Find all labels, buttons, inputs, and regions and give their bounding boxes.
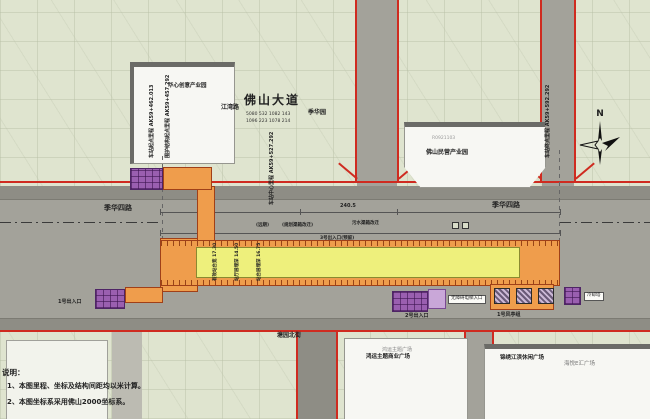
entrance-2-structure: [392, 291, 428, 312]
building-bottom-left: [6, 340, 108, 419]
notes-line-2: 2、本图坐标系采用佛山2000坐标系。: [7, 399, 129, 406]
notes-line-1: 1、本图里程、坐标及结构间距均以米计算。: [7, 383, 145, 390]
cooling-tower-label: 冷却塔: [584, 292, 604, 301]
entrance-1-structure: [95, 289, 125, 309]
entrance-1-label: 1号出入口: [58, 300, 81, 305]
dimension-line-second: [160, 233, 560, 234]
road-label-foshan-avenue: 佛山大道: [244, 94, 300, 106]
road-label-tangyuan-north: 塘园北街: [277, 333, 301, 339]
station-label-3: 站台层埋深 16.75: [258, 243, 263, 281]
notes-heading: 说明：: [2, 369, 25, 377]
building-top-center-sublabel: R0921103: [432, 136, 455, 141]
barrier-free-lift: [428, 289, 446, 309]
road-label-jihua-right: 季华四路: [492, 202, 520, 209]
boundary-red-v1w: [355, 0, 357, 182]
mileage-end: 车站终点里程 AK59+592.292: [546, 85, 551, 158]
road-sidewalk-north: [0, 186, 650, 199]
dim-tick: [160, 209, 161, 215]
vent-shaft-3: [538, 288, 554, 304]
annotation-channel: (规划渠箱改迁): [282, 222, 313, 228]
legend-square-icon: [452, 222, 459, 229]
entrance-2-label: 2号出入口: [405, 314, 428, 319]
dim-tick: [160, 230, 161, 236]
vent-shaft-2: [516, 288, 532, 304]
station-hatch-top: [161, 241, 559, 246]
vent-shaft-1: [494, 288, 510, 304]
mileage-start-2: 围护结构起点里程 AK59+457.292: [166, 75, 171, 158]
road-label-jiangwan: 江湾路: [221, 105, 239, 111]
dim-tick: [397, 209, 398, 215]
road-centerline-west: [0, 222, 160, 223]
guide-line-east: [559, 150, 560, 242]
dimension-line-top: [160, 212, 560, 213]
dim-tick: [560, 230, 561, 236]
curb-line-north: [0, 199, 650, 200]
barrier-free-label: 无障碍电梯入口: [448, 295, 486, 304]
vent-group-1-label: 1号风亭组: [497, 313, 520, 318]
boundary-red-v1e: [397, 0, 399, 182]
road-centerline-east: [560, 222, 650, 223]
stake-numbers-row1: 5080 532 1082 143: [246, 112, 290, 117]
boundary-red-s1e: [336, 332, 338, 419]
north-arrow: N: [578, 110, 622, 174]
building-top-center-label: 佛山民营产业园: [426, 150, 468, 156]
station-platform: [196, 247, 520, 278]
building-top-left-label: 华心创意产业园: [168, 84, 207, 90]
cooling-tower: [564, 287, 581, 305]
station-north-passage: [197, 186, 215, 242]
dim-tick: [300, 209, 301, 215]
boundary-red-bottom: [0, 330, 650, 332]
boundary-red-s1w: [296, 332, 298, 419]
north-label: N: [578, 110, 622, 119]
legend-square-icon: [462, 222, 469, 229]
dim-tick: [560, 209, 561, 215]
boundary-red-v2e: [574, 0, 576, 182]
entrance-1-hall: [125, 287, 163, 303]
annotation-sewer: 污水渠箱改迁: [352, 220, 379, 226]
curb-line-south: [0, 318, 650, 319]
annotation-exit3: 3号出入口(预留): [320, 235, 354, 241]
annotation-far-term: (远期): [256, 222, 269, 228]
building-bottom-right-label: 锦绣江滨休闲广场: [500, 356, 544, 362]
building-bottom-center-label: 鸿运主题商业广场: [366, 355, 410, 361]
station-label-2: 站厅层埋深 14.50: [236, 243, 241, 281]
entrance-top-hall: [163, 167, 212, 190]
mileage-start-1: 车站起点里程 AK59+462.013: [150, 85, 155, 158]
road-south-leg-1: [298, 332, 336, 419]
label-jihua-park: 季华园: [308, 110, 326, 116]
mileage-center: 车站中心里程 AK59+527.292: [270, 132, 275, 205]
building-bottom-center-sublabel: 鸿运主题广场: [382, 346, 412, 353]
boundary-red-top: [0, 181, 650, 183]
station-label-1: 有效站台宽 17.30: [214, 243, 219, 281]
building-bottom-right-sublabel: 海悦E汇广场: [564, 359, 595, 367]
north-arrow-icon: [578, 119, 622, 167]
road-foshan-avenue: [357, 0, 397, 186]
building-top-left: [130, 62, 235, 164]
site-plan-drawing: 华心创意产业园 R0921103 佛山民营产业园 鸿运主题广场 鸿运主题商业广场…: [0, 0, 650, 419]
road-label-jihua-left: 季华四路: [104, 205, 132, 212]
dimension-value-top: 240.5: [340, 204, 356, 209]
stake-numbers-row2: 1096 223 1078 214: [246, 119, 290, 124]
entrance-top-structure: [130, 168, 163, 190]
